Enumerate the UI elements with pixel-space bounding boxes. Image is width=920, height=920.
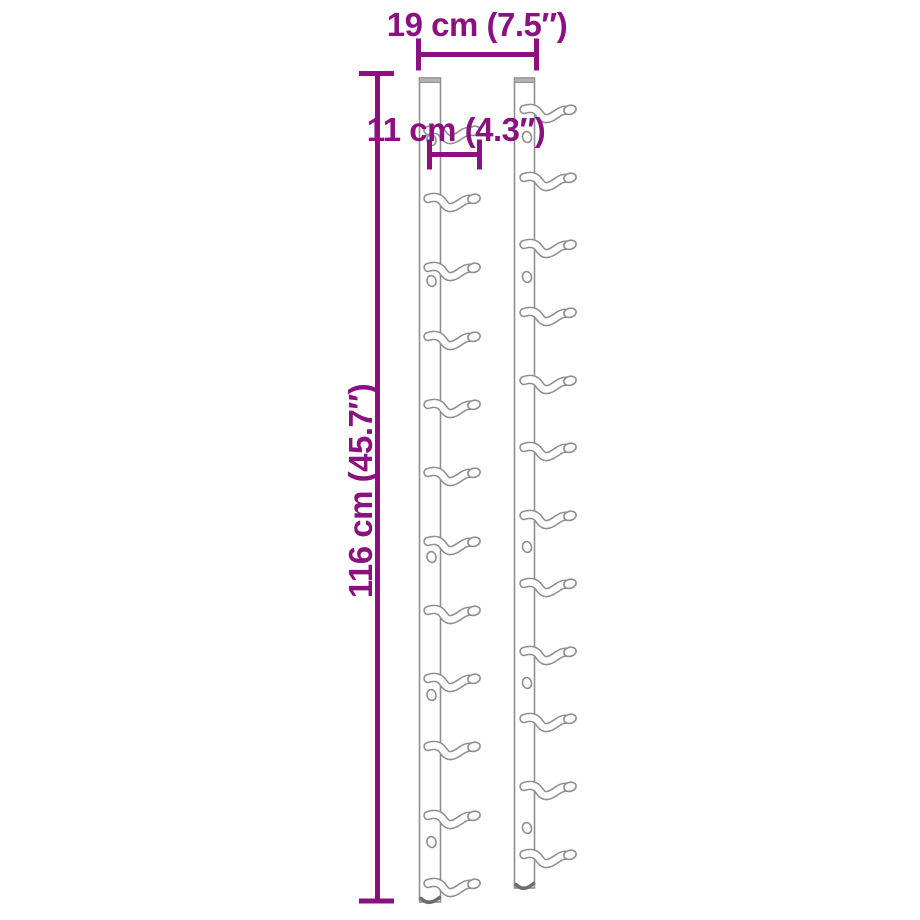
height-dimension: 116 cm (45.7″) — [342, 71, 394, 904]
hook-width-dimension-label: 11 cm (4.3″) — [367, 111, 546, 148]
product-dimension-diagram: 19 cm (7.5″) 11 cm (4.3″) 116 cm (45.7″) — [0, 0, 920, 920]
width-dimension: 19 cm (7.5″) — [387, 6, 567, 71]
diagram-canvas: 19 cm (7.5″) 11 cm (4.3″) 116 cm (45.7″) — [0, 0, 920, 920]
height-dimension-label: 116 cm (45.7″) — [342, 384, 379, 598]
rail-bar — [515, 78, 535, 888]
rail-top-cap — [515, 78, 535, 83]
rail-top-cap — [420, 78, 441, 83]
wine-rack-rail-right — [515, 78, 578, 888]
wine-rack-rail-left — [420, 78, 482, 902]
width-dimension-label: 19 cm (7.5″) — [387, 6, 567, 43]
